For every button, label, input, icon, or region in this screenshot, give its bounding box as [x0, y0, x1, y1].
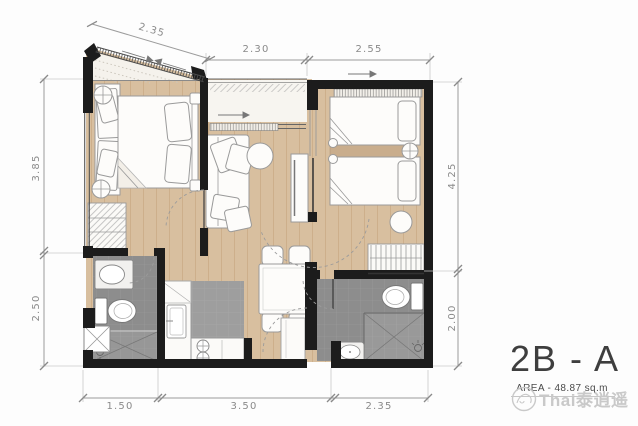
- dining-chair: [262, 312, 283, 332]
- watermark-text: Thai泰逍遥: [539, 390, 628, 410]
- bed-knob: [329, 155, 338, 164]
- pillow: [164, 144, 191, 184]
- unit-title: 2B - A: [510, 338, 620, 379]
- wall-bottom-left: [83, 359, 307, 368]
- arrow-icon: [348, 71, 376, 77]
- wall-stub: [308, 212, 317, 222]
- wall: [83, 57, 93, 113]
- dim-label-left-1: 3.85: [31, 154, 42, 181]
- dim-label-bottom-1: 1.50: [106, 401, 133, 412]
- title-block: 2B - A AREA - 48.87 sq.m: [510, 338, 620, 394]
- floor-plan-svg: 2.30 2.55 2.35 3.85 2.50 4.25 2.00 1.50 …: [0, 0, 638, 426]
- wardrobe-bedroom-1: [88, 203, 126, 249]
- toilet: [95, 298, 136, 324]
- toilet: [382, 283, 423, 310]
- balcony-2-hatch: [210, 84, 305, 92]
- dim-label-bottom-3: 2.35: [365, 401, 392, 412]
- wardrobe-dressing: [368, 244, 424, 273]
- pillow: [164, 102, 192, 142]
- bedroom-2-nightstand: [330, 145, 412, 157]
- bed-post: [190, 93, 201, 104]
- washing-machine: [84, 326, 110, 352]
- side-table-icon: [94, 86, 112, 104]
- wall-bathroom1-top: [83, 248, 128, 256]
- kitchen-tiles: [191, 281, 244, 338]
- floorplan-image: 2.30 2.55 2.35 3.85 2.50 4.25 2.00 1.50 …: [0, 0, 638, 426]
- wall-bedroom1-right: [200, 228, 208, 256]
- sofa-cushion: [224, 206, 252, 233]
- wall-bathroom2-top: [305, 270, 320, 279]
- window-ledge-hatch: [334, 89, 422, 97]
- wall-bathroom2-top: [334, 270, 433, 279]
- sink: [100, 265, 125, 284]
- dim-label-bottom-2: 3.50: [230, 401, 257, 412]
- wall-top-bedroom2: [307, 80, 433, 89]
- wall-balcony-stub: [307, 80, 318, 110]
- stool: [390, 211, 412, 233]
- bed-post: [190, 180, 201, 191]
- wall-kitchen-stub: [244, 338, 252, 360]
- wall-entrance-post: [331, 341, 341, 368]
- wall-bottom-right: [331, 359, 433, 368]
- coffee-table: [247, 143, 273, 169]
- pillow: [398, 161, 416, 201]
- dim-label-left-2: 2.50: [31, 294, 42, 321]
- shoe-cabinet: [281, 318, 305, 360]
- side-table-icon: [92, 180, 110, 198]
- bed-knob: [329, 139, 338, 148]
- pillow: [398, 101, 416, 141]
- dim-label-right-1: 4.25: [447, 162, 458, 189]
- dim-label-top-1: 2.30: [242, 44, 269, 55]
- dim-label-right-2: 2.00: [447, 304, 458, 331]
- entry-furniture: [281, 318, 305, 360]
- wall-lamp-icon: [402, 143, 418, 159]
- tv-console: [291, 154, 308, 222]
- wall: [83, 308, 95, 328]
- wall-right: [424, 81, 433, 368]
- dim-label-top-2: 2.55: [355, 44, 382, 55]
- dim-label-diagonal: 2.35: [137, 22, 166, 40]
- wall-bathroom1-right: [157, 248, 165, 361]
- wall-bedroom1-right: [200, 78, 208, 190]
